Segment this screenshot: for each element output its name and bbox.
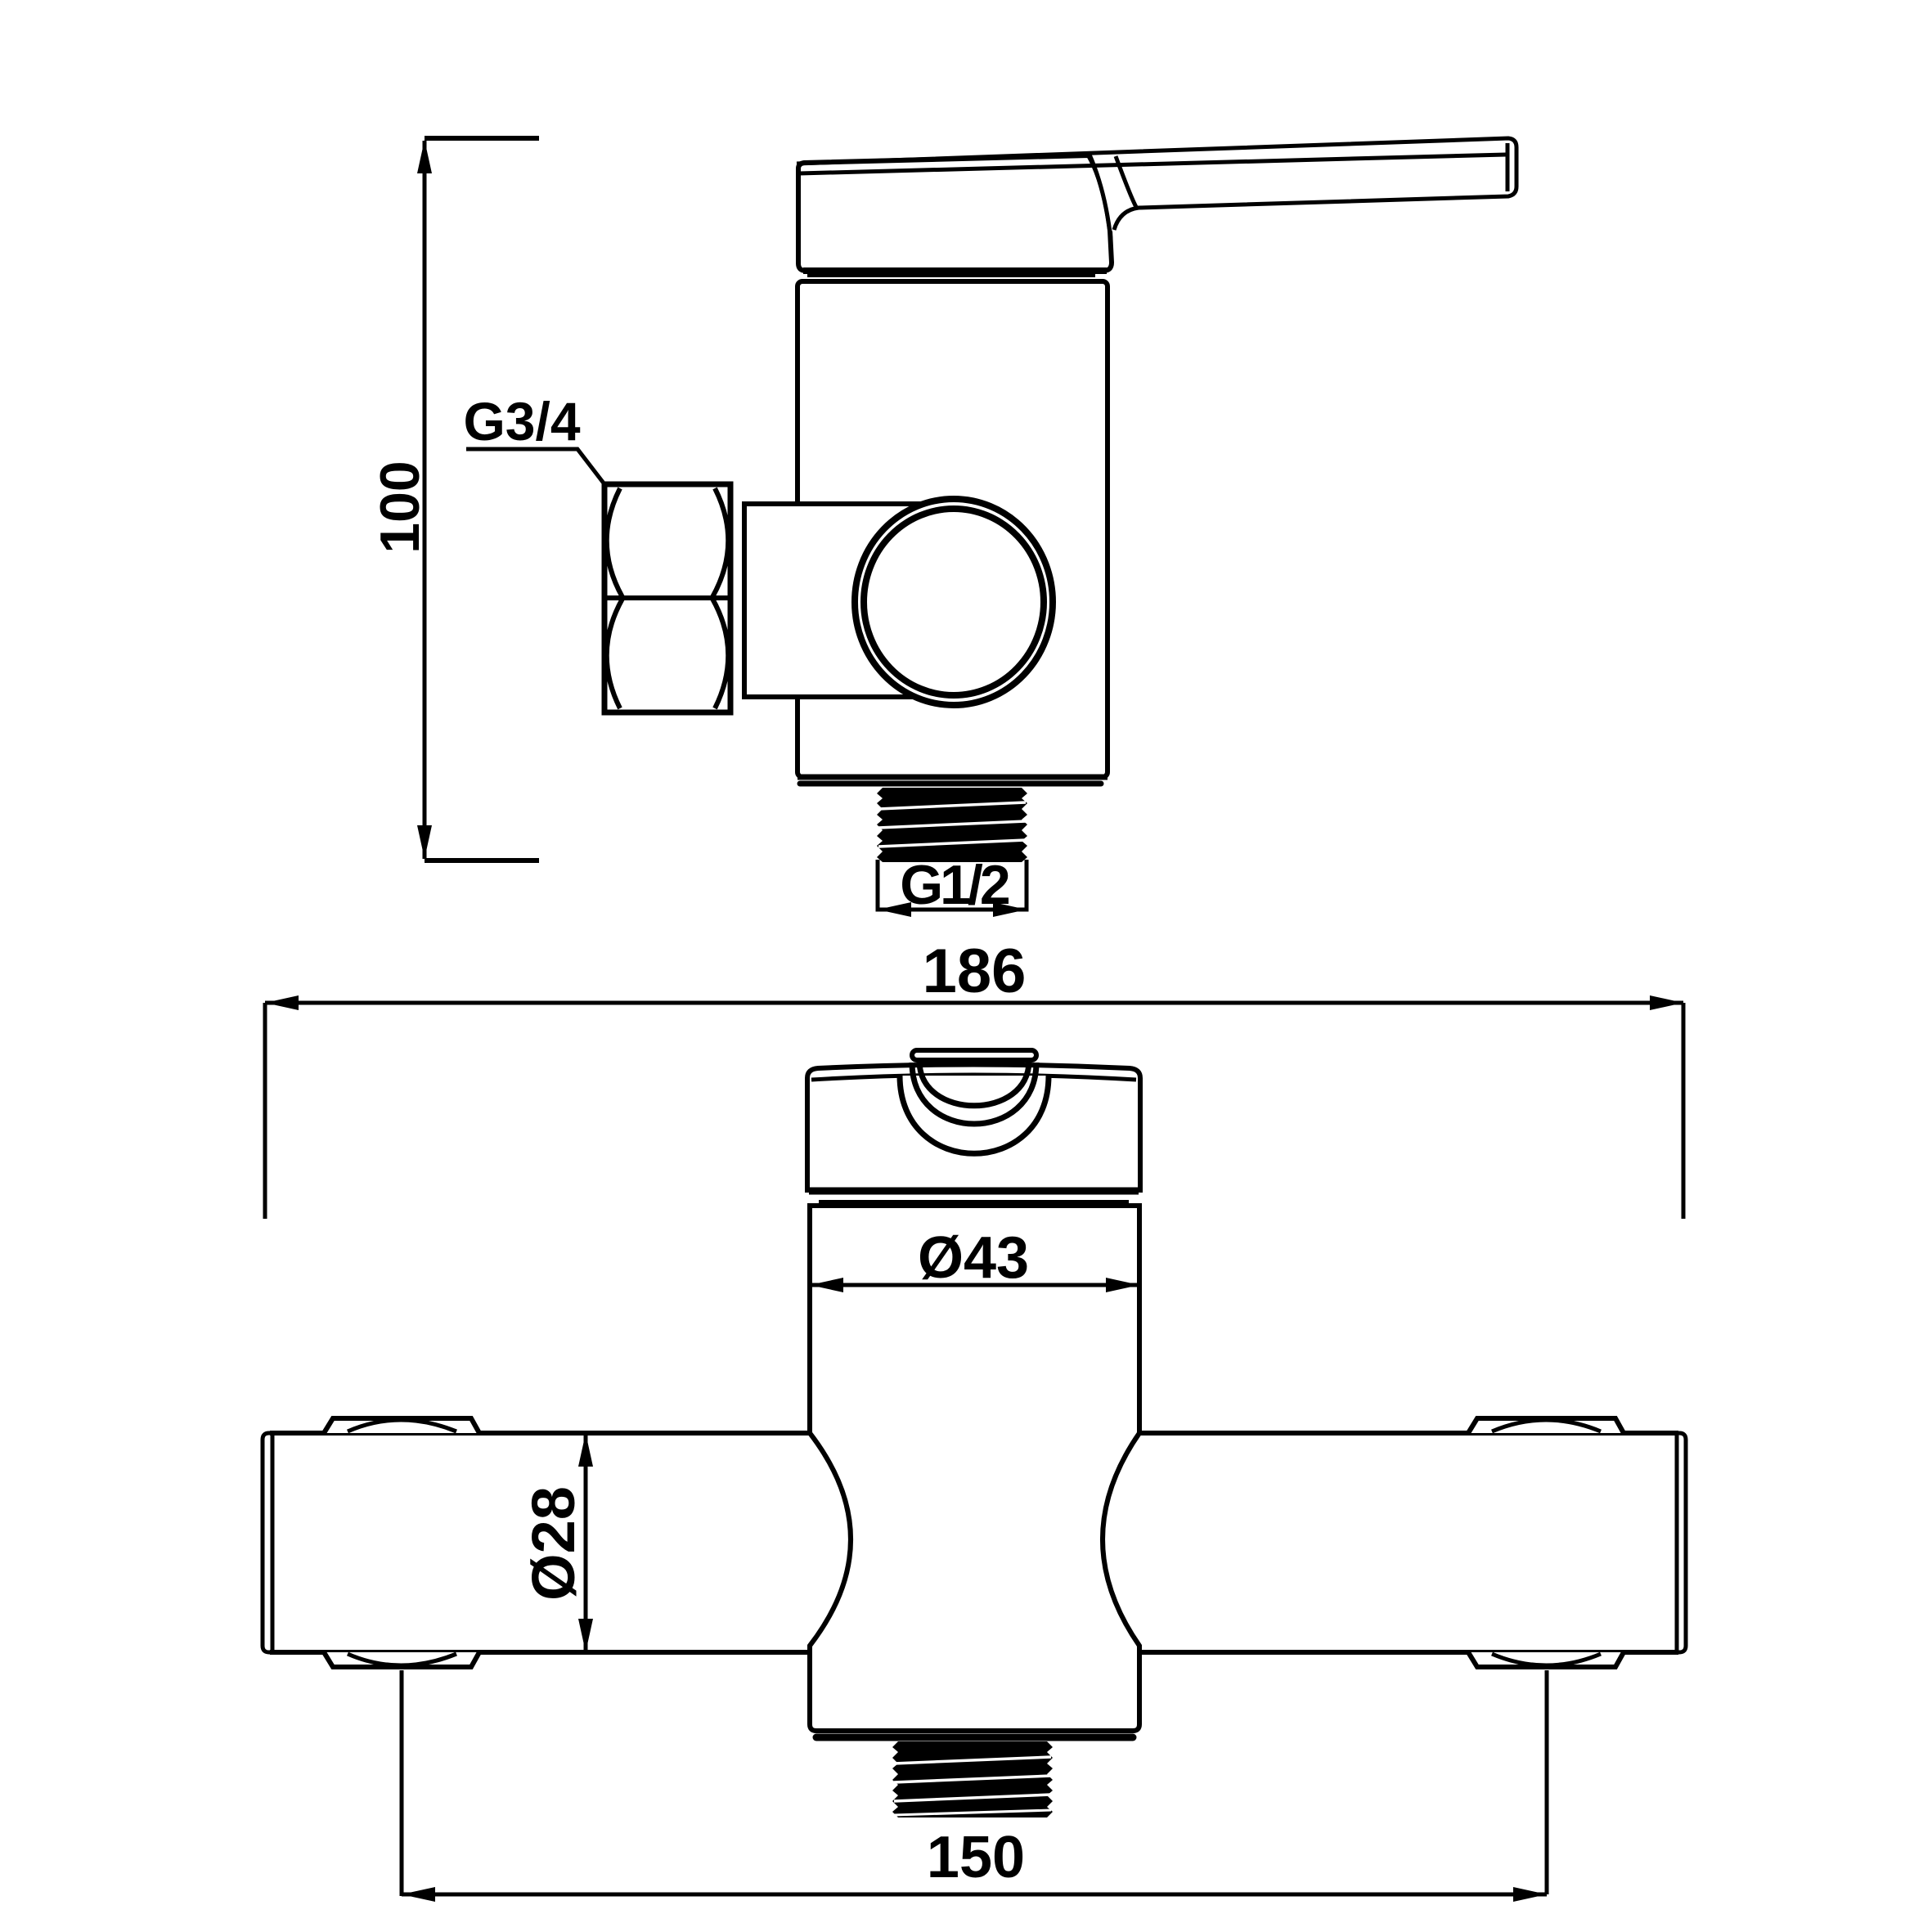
svg-text:Ø43: Ø43 [918, 1225, 1029, 1291]
svg-text:150: 150 [927, 1825, 1025, 1890]
svg-text:Ø28: Ø28 [519, 1486, 587, 1601]
svg-text:186: 186 [923, 937, 1027, 1006]
svg-text:G3/4: G3/4 [463, 391, 580, 452]
svg-text:G1/2: G1/2 [900, 854, 1009, 916]
svg-text:100: 100 [369, 461, 431, 553]
